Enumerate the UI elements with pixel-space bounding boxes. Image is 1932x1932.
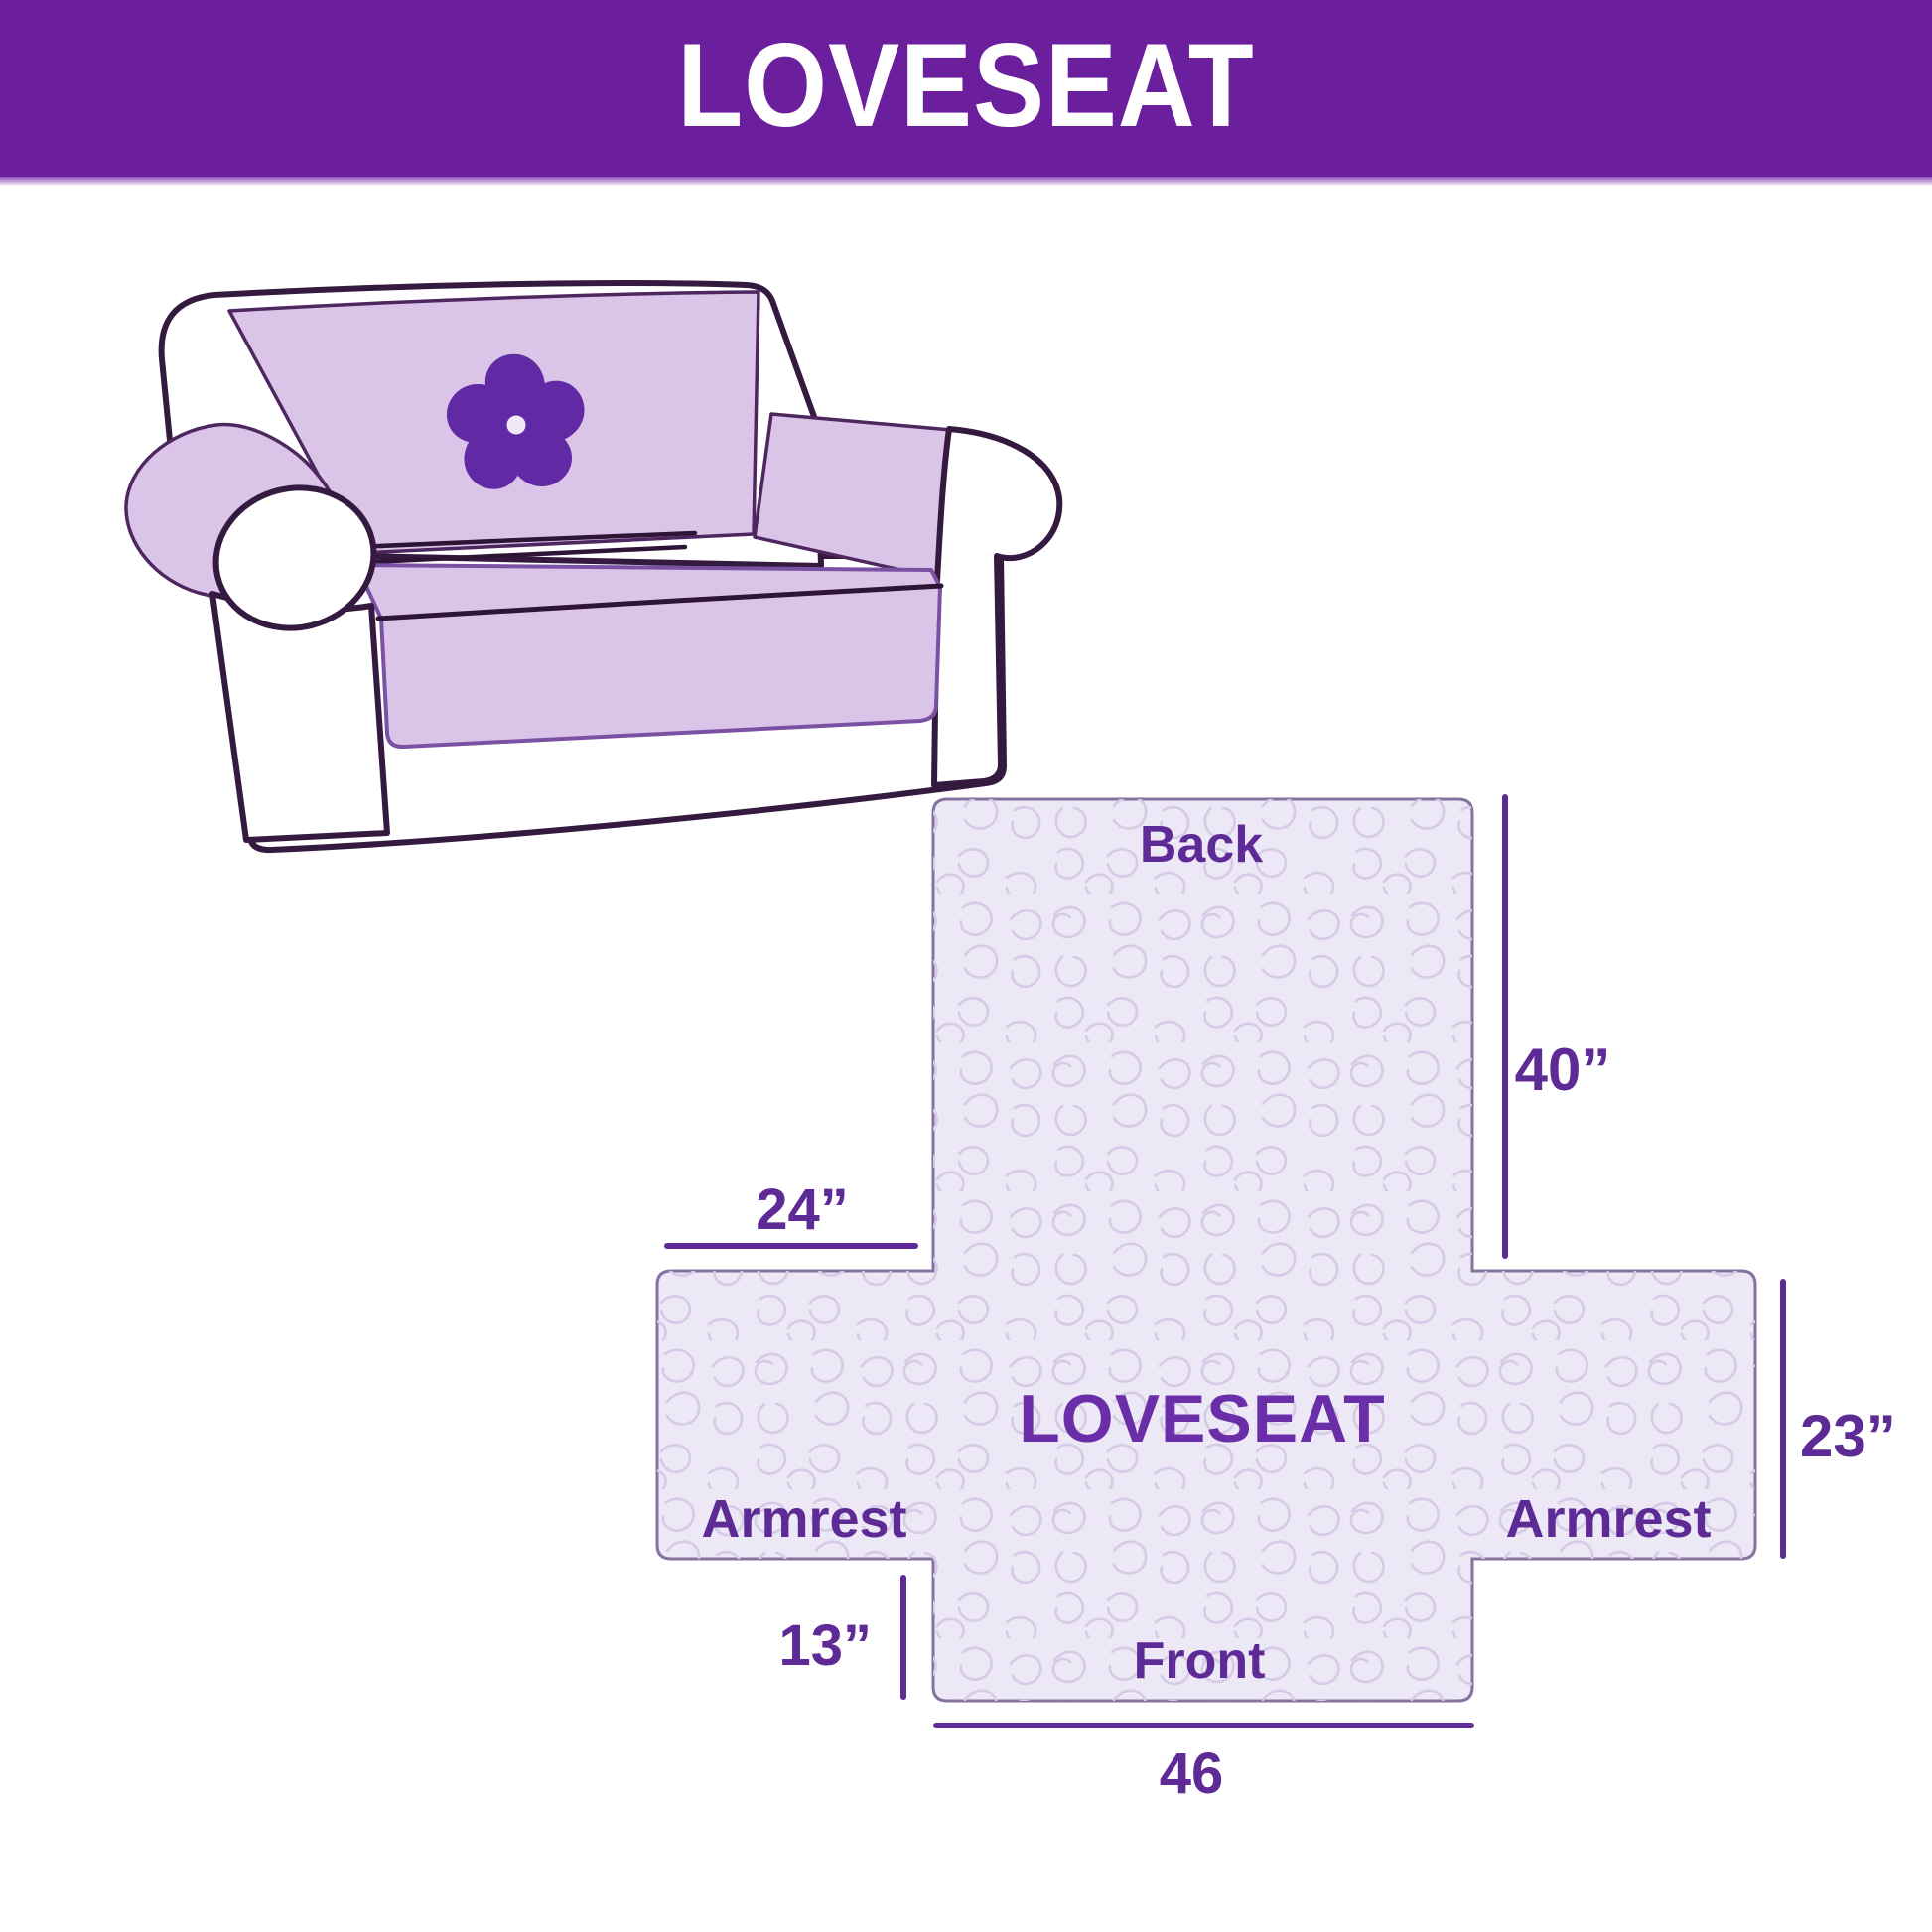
diagram-center-label: LOVESEAT	[1019, 1381, 1385, 1456]
loveseat-illustration	[126, 283, 1059, 850]
dim-front-side-drop: 13”	[778, 1613, 872, 1678]
infographic-page: LOVESEAT	[0, 0, 1932, 1932]
armrest-left-label: Armrest	[701, 1489, 906, 1549]
dim-armrest-top-width: 24”	[756, 1177, 849, 1242]
right-armrest	[934, 429, 1059, 785]
dim-armrest-side-height: 23”	[1800, 1403, 1896, 1469]
back-section-label: Back	[1140, 816, 1263, 874]
cover-pattern-diagram: Back LOVESEAT Armrest Armrest Front 40” …	[657, 797, 1896, 1806]
fabric-quilting-texture	[657, 799, 1755, 1701]
diagram-canvas: Back LOVESEAT Armrest Armrest Front 40” …	[0, 0, 1932, 1932]
left-arm-front	[212, 594, 387, 840]
dim-front-bottom-width: 46	[1160, 1741, 1224, 1806]
front-section-label: Front	[1134, 1632, 1266, 1690]
armrest-right-label: Armrest	[1505, 1489, 1711, 1549]
dim-back-height: 40”	[1515, 1036, 1611, 1103]
